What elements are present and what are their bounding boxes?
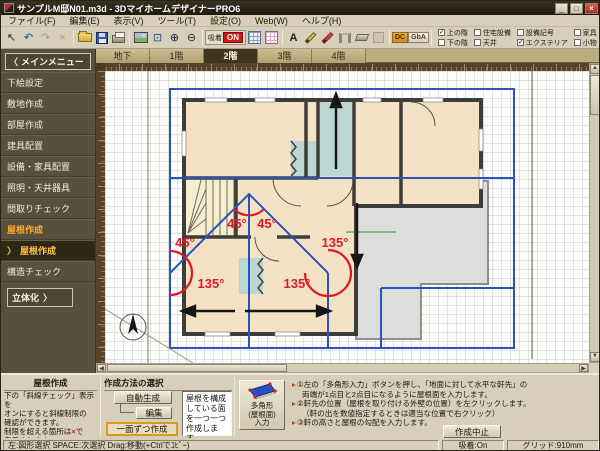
menu-edit[interactable]: 編集(E) bbox=[63, 14, 107, 27]
sidebar-item-furniture[interactable]: 設備・家具配置 bbox=[1, 156, 95, 177]
status-snap: 吸着:On bbox=[442, 440, 504, 451]
sidebar-item-lighting[interactable]: 照明・天井器具 bbox=[1, 177, 95, 198]
title-bar: サンプルM邸N01.m3d - 3DマイホームデザイナーPRO6 _ □ × bbox=[1, 1, 600, 15]
step-bullet-icon: ▸ bbox=[292, 380, 296, 389]
menu-view[interactable]: 表示(V) bbox=[107, 14, 151, 27]
layer-visibility-checks: ✓上の階 下の階 住宅設備 天井 設備記号 ✓エクステリア 家具 小物 ✓文字 … bbox=[438, 28, 600, 48]
scroll-up-icon[interactable]: ▲ bbox=[590, 64, 600, 74]
save-icon[interactable] bbox=[93, 29, 110, 46]
edit-button[interactable]: 編集 bbox=[136, 407, 172, 419]
check-lower-floor[interactable]: 下の階 bbox=[438, 38, 468, 48]
angle-label-1: 45° bbox=[227, 216, 247, 231]
panel-divider-1 bbox=[100, 377, 101, 437]
grid-toggle-icon[interactable] bbox=[246, 29, 263, 46]
main-menu-button[interactable]: 〈 メインメニュー bbox=[5, 53, 91, 70]
menu-help[interactable]: ヘルプ(H) bbox=[295, 14, 349, 27]
scroll-down-icon[interactable]: ▼ bbox=[590, 352, 600, 362]
text-tool-icon[interactable]: A bbox=[285, 29, 302, 46]
method-panel-title: 作成方法の選択 bbox=[104, 377, 232, 391]
sidebar-item-structure-check[interactable]: 構造チェック bbox=[1, 261, 95, 282]
check-exterior[interactable]: ✓エクステリア bbox=[517, 38, 568, 48]
solidify-label: 立体化 bbox=[12, 291, 39, 304]
fit-view-icon[interactable]: ⊡ bbox=[149, 29, 166, 46]
step-bullet-icon: ▸ bbox=[292, 418, 296, 427]
app-window: サンプルM邸N01.m3d - 3DマイホームデザイナーPRO6 _ □ × フ… bbox=[0, 0, 600, 451]
menu-bar: ファイル(F) 編集(E) 表示(V) ツール(T) 設定(O) Web(W) … bbox=[1, 15, 600, 27]
ruler-corner bbox=[96, 63, 105, 71]
back-arrow-icon: 〈 bbox=[9, 55, 18, 68]
menu-web[interactable]: Web(W) bbox=[248, 16, 295, 26]
menu-file[interactable]: ファイル(F) bbox=[1, 14, 63, 27]
sidebar: 〈 メインメニュー 下絵設定 敷地作成 部屋作成 建具配置 設備・家具配置 照明… bbox=[1, 49, 96, 373]
vertical-scroll-thumb[interactable] bbox=[590, 75, 600, 115]
tab-floor1[interactable]: 1階 bbox=[150, 49, 204, 63]
menu-tools[interactable]: ツール(T) bbox=[151, 14, 204, 27]
main-menu-label: メインメニュー bbox=[21, 55, 84, 68]
floor-tab-bar: 地下 1階 2階 3階 4階 bbox=[96, 49, 600, 63]
tab-floor3[interactable]: 3階 bbox=[258, 49, 312, 63]
check-equipment[interactable]: 住宅設備 bbox=[474, 28, 511, 38]
roof-info-panel: 屋根作成 下の「斜線チェック」表示を オンにすると斜線制限の 確認ができます。 … bbox=[4, 377, 97, 438]
bottom-panel: 屋根作成 下の「斜線チェック」表示を オンにすると斜線制限の 確認ができます。 … bbox=[1, 373, 600, 438]
step-bullet-icon: ▸ bbox=[292, 399, 296, 408]
vertical-scrollbar[interactable]: ▲ ▼ bbox=[589, 63, 600, 363]
horizontal-scroll-thumb[interactable] bbox=[107, 364, 287, 372]
chevron-right-icon: 〉 bbox=[7, 244, 16, 257]
angle-label-4: 135° bbox=[198, 276, 225, 291]
image-view-icon[interactable] bbox=[132, 29, 149, 46]
angle-label-2: 45° bbox=[257, 216, 277, 231]
status-grid: グリッド:910mm bbox=[507, 440, 599, 451]
button-connector bbox=[120, 404, 134, 413]
sidebar-subitem-roof-create[interactable]: 〉 屋根作成 bbox=[1, 240, 95, 261]
print-icon[interactable] bbox=[110, 29, 127, 46]
compass bbox=[105, 309, 193, 363]
tab-basement[interactable]: 地下 bbox=[96, 49, 150, 63]
scroll-right-icon[interactable]: ▶ bbox=[579, 364, 588, 372]
redo-icon: ↷ bbox=[37, 29, 54, 46]
tab-floor2[interactable]: 2階 bbox=[204, 49, 258, 63]
floor-plan-drawing: 45° 45° 45° 135° 135° 135° bbox=[105, 71, 589, 363]
paper-grid-icon[interactable] bbox=[263, 29, 280, 46]
scroll-left-icon[interactable]: ◀ bbox=[97, 364, 106, 372]
snap-on-badge: ON bbox=[223, 32, 243, 43]
roof-panel-title: 屋根作成 bbox=[4, 377, 97, 391]
roof-panel-text: 下の「斜線チェック」表示を オンにすると斜線制限の 確認ができます。 制限を超え… bbox=[4, 391, 97, 445]
sidebar-item-roof[interactable]: 屋根作成 bbox=[1, 219, 95, 240]
sidebar-item-layout-check[interactable]: 間取りチェック bbox=[1, 198, 95, 219]
method-description: 屋根を構成している面を一つ一つ作成します。 bbox=[182, 391, 232, 436]
instruction-panel: 多角形 (屋根面) 入力 ▸①左の「多角形入力」ボタンを押し、「地面に対して水平… bbox=[238, 377, 598, 438]
solidify-arrow-icon: 〉 bbox=[43, 291, 52, 304]
dc-button[interactable]: DC bbox=[392, 32, 408, 43]
sidebar-item-rooms[interactable]: 部屋作成 bbox=[1, 114, 95, 135]
toolbar: ↖ ↶ ↷ × ⊡ ⊕ ⊖ 吸着 ON A DC GbA ✓上の階 下 bbox=[1, 27, 600, 49]
angle-label-3: 45° bbox=[175, 235, 195, 250]
status-bar: 左:図形選択 SPACE:次選択 Drag:移動(+Ctrlでｺﾋﾟｰ) 吸着:… bbox=[1, 438, 600, 451]
close-button[interactable]: × bbox=[585, 3, 598, 14]
sidebar-item-fittings[interactable]: 建具配置 bbox=[1, 135, 95, 156]
undo-icon[interactable]: ↶ bbox=[20, 29, 37, 46]
cancel-creation-button[interactable]: 作成中止 bbox=[443, 425, 501, 438]
eraser-tool-icon[interactable] bbox=[353, 29, 370, 46]
sidebar-subitem-label: 屋根作成 bbox=[20, 244, 56, 257]
sidebar-item-sketch[interactable]: 下絵設定 bbox=[1, 72, 95, 93]
minimize-button[interactable]: _ bbox=[555, 3, 568, 14]
tab-floor4[interactable]: 4階 bbox=[312, 49, 366, 63]
check-symbols[interactable]: 設備記号 bbox=[517, 28, 568, 38]
pencil-tool-icon[interactable] bbox=[302, 29, 319, 46]
gba-button[interactable]: GbA bbox=[408, 32, 429, 43]
auto-generate-button[interactable]: 自動生成 bbox=[114, 391, 172, 404]
zoom-in-icon[interactable]: ⊕ bbox=[166, 29, 183, 46]
horizontal-scrollbar[interactable]: ◀ ▶ bbox=[96, 363, 589, 373]
check-ceiling[interactable]: 天井 bbox=[474, 38, 511, 48]
check-furniture[interactable]: 家具 bbox=[574, 28, 597, 38]
steps-text: ▸①左の「多角形入力」ボタンを押し、「地面に対して水平な軒先」の 両端が1点目と… bbox=[292, 380, 531, 428]
dimension-tool-icon[interactable] bbox=[319, 29, 336, 46]
angle-label-5: 135° bbox=[284, 276, 311, 291]
one-by-one-button[interactable]: 一面ずつ作成 bbox=[106, 422, 178, 436]
app-icon bbox=[4, 3, 14, 13]
ruler-vertical bbox=[96, 71, 105, 363]
sidebar-item-site[interactable]: 敷地作成 bbox=[1, 93, 95, 114]
measure-tool-icon[interactable] bbox=[336, 29, 353, 46]
delete-icon: × bbox=[54, 29, 71, 46]
status-hint: 左:図形選択 SPACE:次選択 Drag:移動(+Ctrlでｺﾋﾟｰ) bbox=[3, 440, 439, 451]
snap-toggle[interactable]: 吸着 ON bbox=[205, 30, 246, 45]
angle-label-6: 135° bbox=[322, 235, 349, 250]
check-upper-floor[interactable]: ✓上の階 bbox=[438, 28, 468, 38]
method-panel: 作成方法の選択 自動生成 編集 一面ずつ作成 屋根を構成している面を一つ一つ作成… bbox=[104, 377, 232, 438]
polygon-input-button[interactable]: 多角形 (屋根面) 入力 bbox=[239, 380, 285, 430]
window-title: サンプルM邸N01.m3d - 3DマイホームデザイナーPRO6 bbox=[17, 2, 240, 15]
menu-settings[interactable]: 設定(O) bbox=[203, 14, 248, 27]
check-small-items[interactable]: 小物 bbox=[574, 38, 597, 48]
solidify-button[interactable]: 立体化 〉 bbox=[7, 288, 73, 307]
open-file-icon[interactable] bbox=[76, 29, 93, 46]
box-tool-icon bbox=[370, 29, 387, 46]
ruler-horizontal bbox=[96, 63, 589, 71]
zoom-out-icon[interactable]: ⊖ bbox=[183, 29, 200, 46]
select-tool-icon[interactable]: ↖ bbox=[3, 29, 20, 46]
floor-plan-canvas[interactable]: 45° 45° 45° 135° 135° 135° bbox=[105, 71, 589, 363]
snap-label: 吸着 bbox=[208, 33, 222, 43]
maximize-button[interactable]: □ bbox=[570, 3, 583, 14]
panel-divider-2 bbox=[234, 377, 235, 437]
roof-face-icon bbox=[246, 382, 278, 400]
